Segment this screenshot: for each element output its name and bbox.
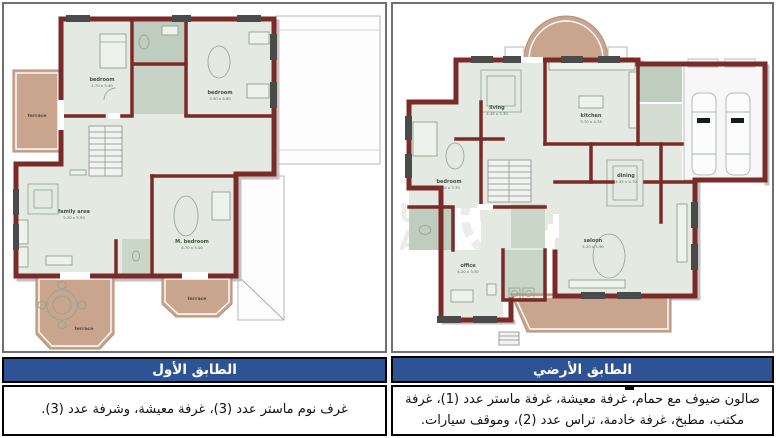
page: { "panels": { "first_floor": { "caption_…: [0, 0, 776, 438]
car-1: [692, 93, 716, 175]
svg-text:5.20 x 5.90: 5.20 x 5.90: [582, 244, 604, 249]
ground-floor-body-text: صالون ضيوف مع حمام، غرفة معيشة، غرفة ماس…: [403, 390, 762, 430]
stairs: [89, 126, 122, 176]
stray-mark: [625, 386, 634, 390]
first-floor-caption-title: الطابق الأول: [2, 357, 387, 383]
car-2: [726, 93, 750, 175]
svg-text:5.20 x 5.50: 5.20 x 5.50: [63, 215, 85, 220]
room-label-terrace-br: terrace: [188, 296, 207, 302]
first-floor-title-text: الطابق الأول: [152, 362, 237, 378]
svg-text:4.70 x 5.00: 4.70 x 5.00: [181, 245, 203, 250]
room-label-terrace-bottom: terrace: [75, 326, 94, 332]
svg-text:3.40 x 3.70: 3.40 x 3.70: [438, 185, 460, 190]
ground-floor-caption-body: صالون ضيوف مع حمام، غرفة معيشة، غرفة ماس…: [391, 385, 774, 436]
first-floor-body-text: غرف نوم ماستر عدد (3)، غرفة معيشة، وشرفة…: [41, 400, 347, 420]
first-floor-plan-panel: bedroom 4.70 x 5.40 bedroom 3.30 x 4.80 …: [2, 2, 387, 353]
svg-text:3.70 x 4.35: 3.70 x 4.35: [580, 119, 602, 124]
terrace-left: [13, 70, 61, 152]
first-floor-caption-body: غرف نوم ماستر عدد (3)، غرفة معيشة، وشرفة…: [2, 385, 387, 436]
garage: [684, 59, 765, 180]
ground-floor-title-text: الطابق الأرضي: [533, 362, 632, 378]
arch-terrace: [505, 16, 627, 61]
svg-text:3.30 x 4.80: 3.30 x 4.80: [209, 96, 231, 101]
ground-floor-plan-image: US AR: [393, 4, 772, 351]
svg-text:4.20 x 3.30: 4.20 x 3.30: [457, 269, 479, 274]
ground-floor-plan-panel: US AR: [391, 2, 774, 353]
stairs: [488, 160, 531, 202]
room-label-terrace-left: terrace: [28, 113, 47, 119]
svg-text:4.45 x 5.30: 4.45 x 5.30: [486, 111, 508, 116]
svg-text:4.45 x 4.70: 4.45 x 4.70: [615, 179, 637, 184]
terrace-bottom: [36, 276, 114, 349]
ground-floor-caption-title: الطابق الأرضي: [391, 356, 774, 383]
first-floor-plan-image: bedroom 4.70 x 5.40 bedroom 3.30 x 4.80 …: [4, 4, 385, 351]
svg-text:4.70 x 5.40: 4.70 x 5.40: [91, 83, 113, 88]
